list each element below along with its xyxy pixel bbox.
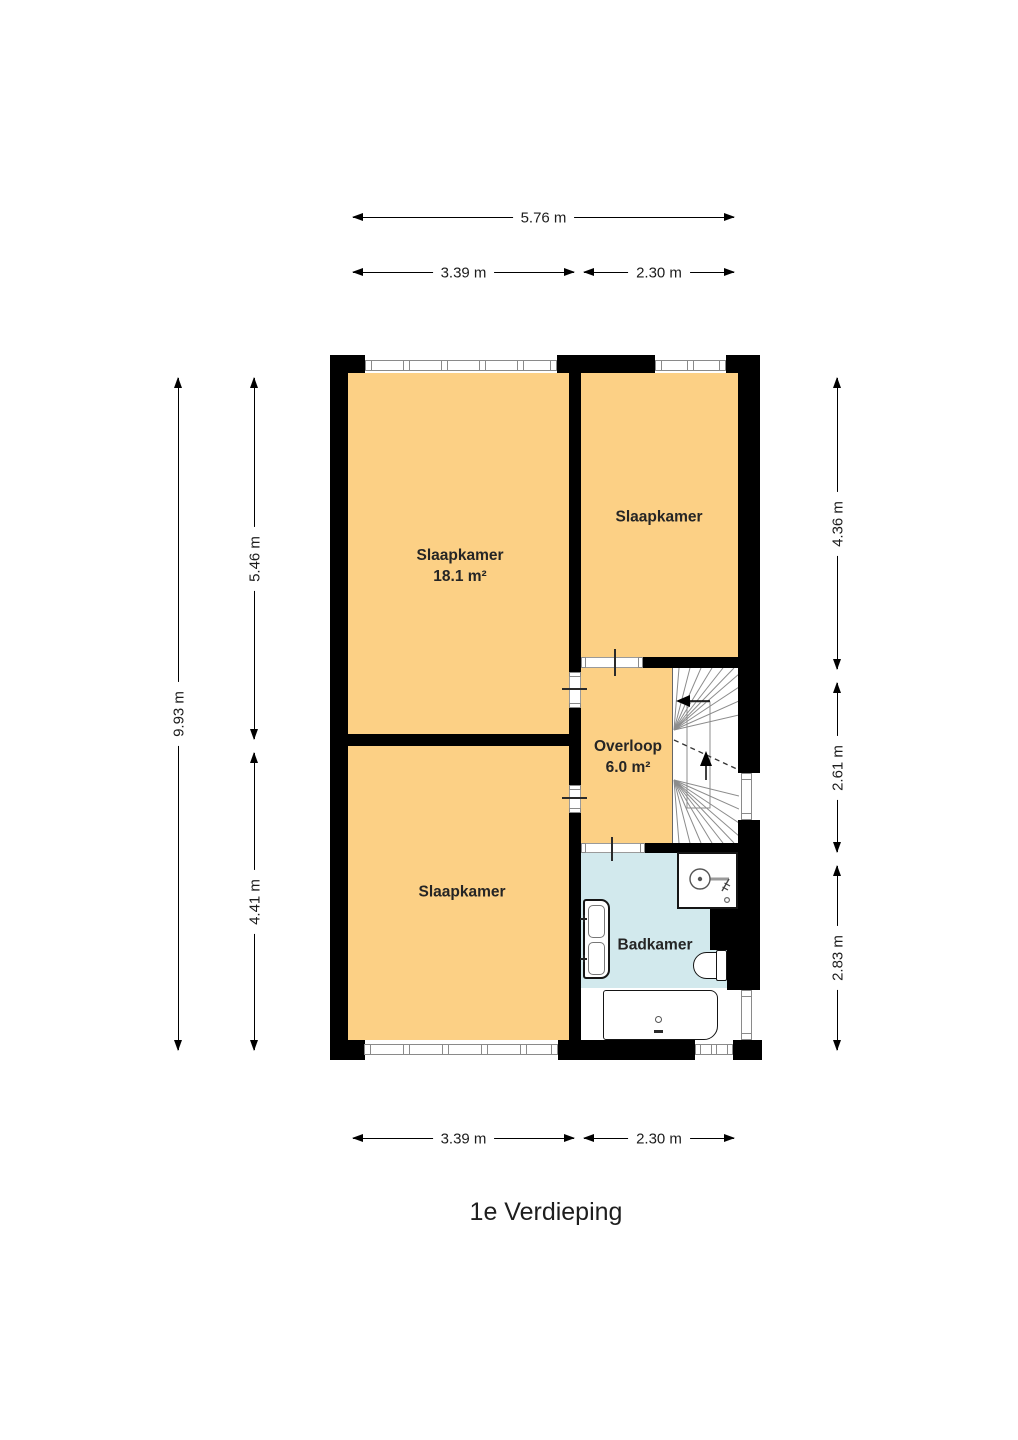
bedroom-large-name: Slaapkamer bbox=[416, 545, 503, 566]
page-title: 1e Verdieping bbox=[346, 1198, 746, 1227]
wall-bottom-right-corner bbox=[733, 1040, 762, 1060]
label-bedroom-right: Slaapkamer bbox=[615, 507, 702, 528]
staircase bbox=[672, 668, 739, 843]
dimension-left-upper: 5.46 m bbox=[248, 377, 261, 740]
landing-name: Overloop bbox=[594, 736, 662, 757]
wall-bottom-left-corner bbox=[330, 1040, 365, 1060]
dimension-top-total: 5.76 m bbox=[352, 211, 735, 224]
window-right-bathroom bbox=[741, 990, 752, 1040]
toilet-tank bbox=[716, 950, 727, 981]
shower-icon bbox=[679, 854, 736, 907]
landing-area: 6.0 m² bbox=[594, 757, 662, 778]
window-top-large bbox=[365, 360, 557, 371]
sink-basin-bottom bbox=[588, 942, 605, 975]
bedroom-large-area: 18.1 m² bbox=[416, 566, 503, 587]
dimension-right-upper: 4.36 m bbox=[831, 377, 844, 670]
wall-stub-beside-toilet bbox=[727, 950, 760, 990]
wall-top-center bbox=[557, 355, 655, 373]
wall-left bbox=[330, 355, 348, 1060]
wall-interior-vertical-upper bbox=[569, 373, 581, 672]
wall-interior-vertical-middle bbox=[569, 708, 581, 785]
door-bedroom-large bbox=[569, 672, 581, 708]
dimension-left-lower-label: 4.41 m bbox=[247, 870, 264, 934]
window-right-stairs bbox=[741, 773, 752, 820]
dimension-bottom-left-label: 3.39 m bbox=[433, 1131, 495, 1148]
door-bedroom-large-tick bbox=[562, 688, 587, 690]
dimension-bottom-left: 3.39 m bbox=[352, 1132, 575, 1145]
bathroom-name: Badkamer bbox=[618, 937, 693, 954]
dimension-left-total: 9.93 m bbox=[172, 377, 185, 1051]
dimension-bottom-right-label: 2.30 m bbox=[628, 1131, 690, 1148]
label-bedroom-large: Slaapkamer 18.1 m² bbox=[416, 545, 503, 587]
dimension-bottom-right: 2.30 m bbox=[583, 1132, 735, 1145]
sink-tap-bottom-icon bbox=[580, 955, 587, 962]
dimension-top-left-label: 3.39 m bbox=[433, 265, 495, 282]
dimension-right-middle: 2.61 m bbox=[831, 682, 844, 853]
wall-right-upper bbox=[738, 355, 760, 773]
door-bedroom-right-tick bbox=[614, 649, 616, 676]
window-top-small bbox=[655, 360, 726, 371]
wall-interior-vertical-lower bbox=[569, 813, 581, 1040]
door-bathroom bbox=[581, 843, 645, 853]
bedroom-bottom-name: Slaapkamer bbox=[418, 884, 505, 901]
wall-bedroom-right-bottom bbox=[643, 657, 738, 668]
dimension-right-lower-label: 2.83 m bbox=[830, 926, 847, 990]
window-bottom-large bbox=[364, 1044, 558, 1055]
dimension-left-total-label: 9.93 m bbox=[171, 682, 188, 746]
bathtub-overflow-icon bbox=[654, 1030, 663, 1033]
dimension-right-middle-label: 2.61 m bbox=[830, 736, 847, 800]
window-bottom-small bbox=[695, 1044, 733, 1055]
wall-top-right-corner bbox=[726, 355, 760, 373]
dimension-left-upper-label: 5.46 m bbox=[247, 527, 264, 591]
bathtub bbox=[603, 990, 718, 1040]
wall-between-left-bedrooms bbox=[348, 734, 581, 746]
dimension-top-right-label: 2.30 m bbox=[628, 265, 690, 282]
door-bedroom-bottom-tick bbox=[562, 797, 587, 799]
bathtub-drain-icon bbox=[655, 1016, 662, 1023]
sink-tap-top-icon bbox=[580, 915, 587, 922]
wall-top-left-corner bbox=[330, 355, 365, 373]
label-bathroom: Badkamer bbox=[618, 935, 693, 956]
door-bathroom-tick bbox=[611, 837, 613, 861]
dimension-top-total-label: 5.76 m bbox=[513, 210, 575, 227]
dimension-right-upper-label: 4.36 m bbox=[830, 492, 847, 556]
label-bedroom-bottom: Slaapkamer bbox=[418, 882, 505, 903]
wall-stub-below-shower bbox=[710, 908, 760, 950]
dimension-left-lower: 4.41 m bbox=[248, 752, 261, 1051]
double-sink bbox=[583, 899, 610, 979]
wall-bottom-center bbox=[558, 1040, 695, 1060]
dimension-top-right: 2.30 m bbox=[583, 266, 735, 279]
door-bedroom-bottom bbox=[569, 785, 581, 813]
floorplan-canvas: 5.76 m 3.39 m 2.30 m 3.39 m 2.30 m 9.93 … bbox=[0, 0, 1018, 1440]
shower bbox=[677, 852, 738, 909]
label-landing: Overloop 6.0 m² bbox=[594, 736, 662, 778]
dimension-right-lower: 2.83 m bbox=[831, 865, 844, 1051]
staircase-treads-icon bbox=[673, 668, 739, 843]
door-bedroom-right bbox=[581, 657, 643, 668]
dimension-top-left: 3.39 m bbox=[352, 266, 575, 279]
sink-basin-top bbox=[588, 905, 605, 938]
bedroom-right-name: Slaapkamer bbox=[615, 509, 702, 526]
